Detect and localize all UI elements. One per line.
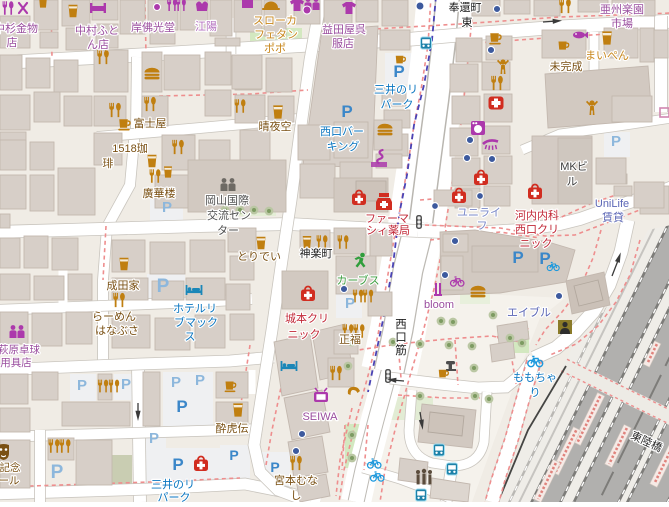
svg-text:フ: フ [477, 220, 488, 232]
svg-text:琲: 琲 [103, 156, 114, 170]
svg-text:筋: 筋 [395, 343, 407, 357]
svg-text:中村ふと: 中村ふと [75, 23, 119, 37]
svg-text:P: P [229, 447, 238, 463]
svg-text:三井のリ: 三井のリ [374, 82, 418, 96]
svg-text:神楽町: 神楽町 [300, 246, 333, 260]
svg-text:UniLife: UniLife [595, 198, 629, 210]
svg-text:用具店: 用具店 [0, 356, 32, 369]
svg-text:賃貸: 賃貸 [602, 210, 624, 224]
svg-text:P: P [172, 455, 183, 474]
svg-text:服店: 服店 [332, 36, 354, 50]
svg-text:ホテルリ: ホテルリ [173, 302, 217, 315]
svg-text:とりでい: とりでい [237, 250, 281, 263]
svg-text:P: P [512, 248, 523, 267]
svg-text:り: り [530, 386, 541, 399]
svg-text:ス: ス [185, 331, 196, 343]
svg-text:市場: 市場 [611, 16, 633, 30]
svg-text:シィ薬局: シィ薬局 [366, 224, 410, 237]
svg-text:口: 口 [395, 332, 407, 344]
svg-text:bloom: bloom [424, 299, 454, 311]
svg-text:宮本むな: 宮本むな [274, 473, 318, 487]
svg-text:成田家: 成田家 [107, 278, 140, 292]
svg-text:P: P [121, 376, 131, 393]
svg-text:河内内科: 河内内科 [515, 208, 559, 222]
svg-text:廣華楼: 廣華楼 [143, 186, 176, 200]
svg-text:岸佛光堂: 岸佛光堂 [131, 20, 175, 34]
svg-text:西口クリ: 西口クリ [515, 223, 559, 236]
svg-text:1518珈: 1518珈 [112, 142, 147, 155]
svg-text:P: P [341, 102, 352, 121]
svg-text:ももちゃ: ももちゃ [513, 371, 557, 384]
svg-text:P: P [77, 377, 87, 394]
svg-text:らーめん: らーめん [92, 310, 136, 323]
svg-text:カーブス: カーブス [336, 273, 379, 287]
svg-text:MKビ: MKビ [560, 160, 588, 173]
svg-text:SEIWA: SEIWA [302, 411, 338, 423]
svg-text:ニック: ニック [288, 328, 321, 341]
svg-text:ブマック: ブマック [174, 315, 218, 329]
svg-text:ター: ター [217, 224, 239, 237]
svg-text:岡山国際: 岡山国際 [205, 194, 249, 207]
svg-text:西: 西 [395, 319, 407, 331]
svg-text:ユニライ: ユニライ [457, 207, 501, 219]
svg-text:P: P [157, 276, 170, 297]
svg-text:パーク: パーク [158, 491, 191, 502]
svg-text:し: し [291, 489, 302, 502]
svg-text:P: P [149, 430, 159, 447]
svg-text:P: P [176, 397, 187, 416]
svg-text:記念: 記念 [0, 461, 21, 474]
svg-text:パーク: パーク [381, 98, 414, 111]
svg-text:江陽: 江陽 [195, 20, 217, 33]
svg-text:P: P [51, 462, 64, 483]
svg-text:P: P [611, 133, 621, 150]
svg-text:未完成: 未完成 [550, 59, 583, 73]
svg-text:P: P [162, 199, 172, 216]
svg-text:西口バー: 西口バー [320, 125, 364, 138]
svg-text:まいぺん: まいぺん [585, 49, 629, 62]
svg-text:ファーマ: ファーマ [365, 213, 409, 225]
svg-text:萩原卓球: 萩原卓球 [0, 343, 40, 356]
svg-text:城本クリ: 城本クリ [285, 311, 329, 325]
svg-text:フェタン: フェタン [254, 28, 298, 41]
svg-text:はなぶさ: はなぶさ [95, 324, 139, 337]
svg-text:交流セン: 交流セン [207, 208, 251, 222]
svg-text:P: P [171, 374, 181, 391]
svg-text:酔虎伝: 酔虎伝 [216, 421, 249, 435]
svg-text:東: 東 [462, 16, 473, 29]
svg-text:三井のリ: 三井のリ [151, 477, 195, 491]
svg-text:正福: 正福 [339, 332, 361, 346]
svg-text:エイブル: エイブル [507, 305, 551, 319]
svg-text:亜州楽園: 亜州楽園 [600, 3, 644, 16]
svg-text:益田屋呉: 益田屋呉 [322, 22, 366, 36]
svg-text:P: P [393, 62, 404, 81]
svg-text:P: P [195, 372, 205, 389]
svg-text:ポポ: ポポ [264, 42, 286, 55]
svg-text:スローカ: スローカ [253, 14, 297, 27]
svg-text:富士屋: 富士屋 [134, 116, 167, 130]
svg-text:晴夜空: 晴夜空 [259, 119, 292, 133]
svg-text:奉還町: 奉還町 [449, 0, 482, 14]
svg-text:ニック: ニック [520, 237, 553, 250]
svg-text:P: P [270, 459, 279, 475]
svg-text:ル: ル [567, 176, 578, 188]
svg-text:中杉金物: 中杉金物 [0, 21, 38, 35]
svg-text:P: P [345, 295, 355, 312]
svg-text:ール: ール [0, 475, 20, 487]
svg-text:店: 店 [7, 35, 18, 49]
svg-text:キング: キング [327, 139, 360, 153]
svg-text:ん店: ん店 [87, 37, 109, 51]
